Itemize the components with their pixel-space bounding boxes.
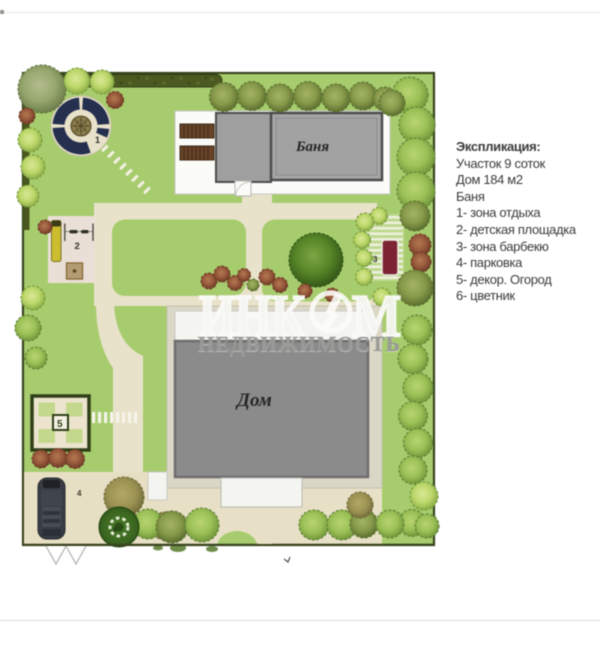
svg-text:Баня: Баня bbox=[295, 139, 329, 155]
svg-text:4: 4 bbox=[77, 489, 82, 498]
svg-text:6: 6 bbox=[113, 527, 117, 534]
svg-text:5: 5 bbox=[57, 419, 63, 430]
svg-text:2: 2 bbox=[75, 241, 80, 252]
svg-text:3: 3 bbox=[373, 255, 378, 264]
svg-text:1: 1 bbox=[95, 135, 100, 145]
svg-text:Дом: Дом bbox=[235, 390, 272, 411]
